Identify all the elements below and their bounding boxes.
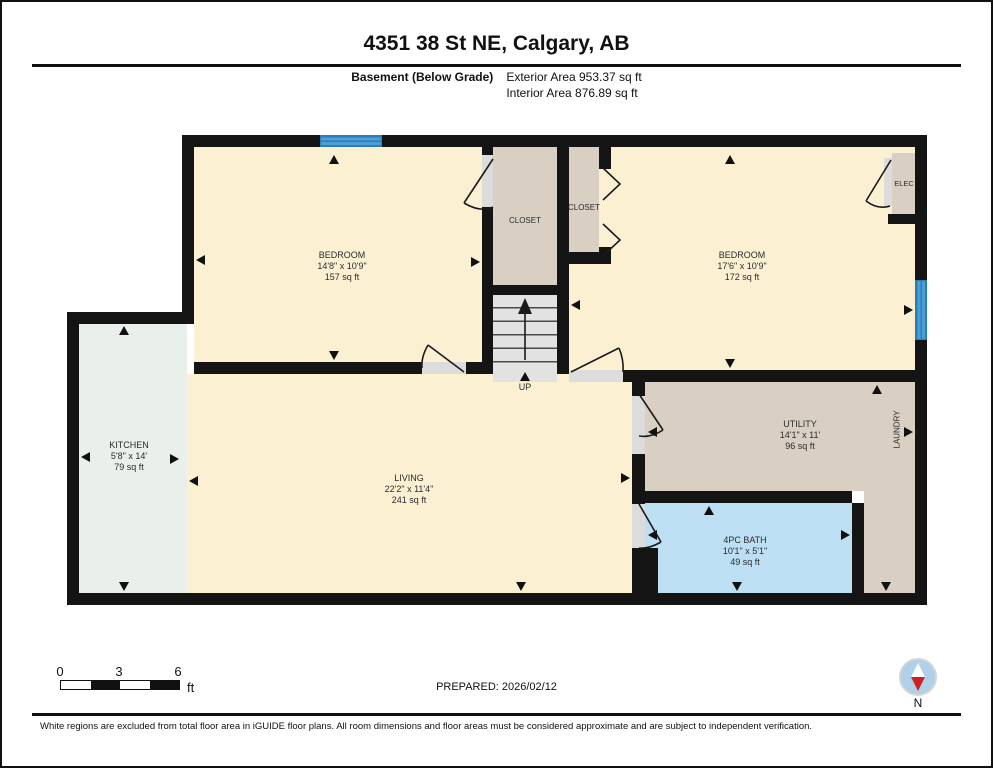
dimension-arrow [621, 473, 630, 483]
room-label-elec: ELEC [886, 179, 922, 188]
room-closet-2 [569, 147, 599, 252]
wall [493, 285, 557, 295]
room-label-closet-1: CLOSET [493, 216, 557, 225]
dimension-arrow [841, 530, 850, 540]
room-name: LIVING [324, 473, 494, 484]
compass-needle-south [911, 677, 925, 691]
footer-divider [32, 713, 961, 716]
room-area: 96 sq ft [715, 441, 885, 452]
compass-needle-north [911, 663, 925, 677]
compass-north-label: N [899, 696, 937, 710]
dimension-arrow [725, 155, 735, 164]
floorplan: BEDROOM 14'8" x 10'9" 157 sq ft BEDROOM … [2, 2, 993, 768]
room-dims: 17'6" x 10'9" [657, 261, 827, 272]
stairs [493, 295, 557, 370]
wall [557, 147, 569, 374]
room-label-bath: 4PC BATH 10'1" x 5'1" 49 sq ft [660, 535, 830, 568]
compass-icon [899, 658, 937, 696]
dimension-arrow [704, 506, 714, 515]
room-name: 4PC BATH [660, 535, 830, 546]
dimension-arrow [471, 257, 480, 267]
dimension-arrow [732, 582, 742, 591]
door-opening [422, 362, 466, 374]
dimension-arrow [872, 385, 882, 394]
wall [599, 147, 611, 169]
stairs-up-label: UP [493, 382, 557, 393]
prepared-date: PREPARED: 2026/02/12 [2, 681, 991, 693]
wall [67, 593, 927, 605]
room-label-laundry: LAUNDRY [893, 392, 902, 468]
dimension-arrow [119, 582, 129, 591]
wall [632, 382, 645, 396]
scale-tick-6: 6 [174, 664, 181, 679]
dimension-arrow [648, 530, 657, 540]
dimension-arrow [520, 372, 530, 381]
room-label-bedroom-1: BEDROOM 14'8" x 10'9" 157 sq ft [257, 250, 427, 283]
dimension-arrow [571, 300, 580, 310]
room-label-closet-2: CLOSET [554, 203, 614, 212]
wall [182, 147, 194, 324]
room-name: UTILITY [715, 419, 885, 430]
window-symbol [915, 280, 927, 340]
room-bedroom-2-alcove [569, 264, 623, 370]
room-name: BEDROOM [657, 250, 827, 261]
wall [645, 491, 852, 503]
dimension-arrow [648, 427, 657, 437]
room-dims: 22'2" x 11'4" [324, 484, 494, 495]
disclaimer-text: White regions are excluded from total fl… [40, 721, 971, 732]
dimension-arrow [329, 351, 339, 360]
wall [915, 147, 927, 605]
door-opening [569, 370, 623, 382]
door-opening [482, 155, 493, 207]
window-symbol [320, 135, 382, 147]
wall [623, 370, 915, 382]
wall [632, 548, 658, 593]
wall [67, 312, 194, 324]
room-area: 157 sq ft [257, 272, 427, 283]
wall [632, 454, 645, 504]
scale-tick-0: 0 [56, 664, 63, 679]
room-label-kitchen: KITCHEN 5'8" x 14' 79 sq ft [44, 440, 214, 473]
scale-tick-3: 3 [115, 664, 122, 679]
dimension-arrow [881, 582, 891, 591]
wall [599, 247, 611, 264]
room-dims: 10'1" x 5'1" [660, 546, 830, 557]
wall [194, 362, 422, 374]
room-dims: 14'1" x 11' [715, 430, 885, 441]
dimension-arrow [119, 326, 129, 335]
room-area: 49 sq ft [660, 557, 830, 568]
room-label-utility: UTILITY 14'1" x 11' 96 sq ft [715, 419, 885, 452]
dimension-arrow [904, 427, 913, 437]
door-opening [632, 396, 645, 454]
floorplan-sheet: 4351 38 St NE, Calgary, AB Basement (Bel… [0, 0, 993, 768]
room-label-living: LIVING 22'2" x 11'4" 241 sq ft [324, 473, 494, 506]
dimension-arrow [196, 255, 205, 265]
room-label-bedroom-2: BEDROOM 17'6" x 10'9" 172 sq ft [657, 250, 827, 283]
dimension-arrow [725, 359, 735, 368]
wall [888, 214, 915, 224]
dimension-arrow [329, 155, 339, 164]
scale-ticks: 0 3 6 [60, 664, 178, 680]
wall [182, 135, 927, 147]
room-dims: 5'8" x 14' [44, 451, 214, 462]
room-area: 79 sq ft [44, 462, 214, 473]
dimension-arrow [516, 582, 526, 591]
door-opening [632, 504, 645, 548]
dimension-arrow [189, 476, 198, 486]
room-area: 172 sq ft [657, 272, 827, 283]
room-area: 241 sq ft [324, 495, 494, 506]
dimension-arrow [904, 305, 913, 315]
wall [852, 503, 864, 593]
room-name: KITCHEN [44, 440, 214, 451]
room-name: BEDROOM [257, 250, 427, 261]
room-laundry-corridor [864, 491, 915, 593]
room-dims: 14'8" x 10'9" [257, 261, 427, 272]
